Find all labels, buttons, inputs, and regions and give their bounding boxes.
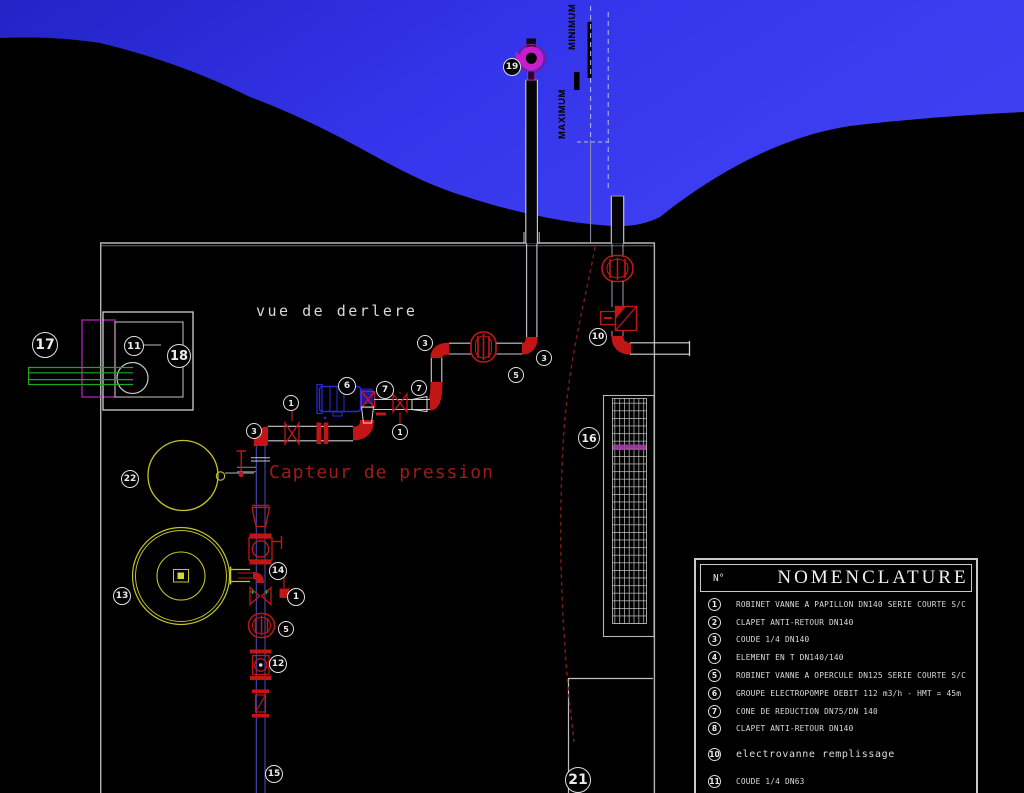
callout-19: 19 — [503, 58, 521, 76]
callout-18: 18 — [167, 344, 191, 368]
row-number-badge: 3 — [708, 633, 721, 646]
nomenclature-row-4: 4ELEMENT EN T DN140/140 — [708, 652, 976, 663]
callout-1: 1 — [392, 424, 408, 440]
nomenclature-row-3: 3COUDE 1/4 DN140 — [708, 634, 976, 645]
callout-11: 11 — [124, 336, 144, 356]
level-curve — [561, 247, 595, 742]
callout-5: 5 — [278, 621, 294, 637]
callout-3: 3 — [246, 423, 262, 439]
row-number-badge: 2 — [708, 616, 721, 629]
suction-riser-pipe — [237, 445, 271, 793]
callout-12: 12 — [269, 655, 287, 673]
callout-7: 7 — [376, 381, 394, 399]
callout-7: 7 — [411, 380, 427, 396]
cad-canvas: vue de derlere Capteur de pression MINIM… — [0, 0, 1024, 793]
butterfly-fitting-icon — [252, 506, 270, 527]
level-min-label: MINIMUM — [567, 4, 579, 50]
row-label: electrovanne remplissage — [736, 749, 895, 760]
callout-17: 17 — [32, 332, 58, 358]
row-label: CONE DE REDUCTION DN75/DN 140 — [736, 707, 878, 716]
nomenclature-row-6: 6GROUPE ELECTROPOMPE DEBIT 112 m3/h - HM… — [708, 688, 976, 699]
row-number-badge: 4 — [708, 651, 721, 664]
row-label: COUDE 1/4 DN63 — [736, 777, 805, 786]
nomenclature-row-8: 8CLAPET ANTI-RETOUR DN140 — [708, 723, 976, 734]
callout-22: 22 — [121, 470, 139, 488]
nomenclature-table: N° NOMENCLATURE 1ROBINET VANNE A PAPILLO… — [694, 558, 978, 793]
callout-14: 14 — [269, 562, 287, 580]
nomenclature-col-no: N° — [701, 573, 775, 584]
nomenclature-row-7: 7CONE DE REDUCTION DN75/DN 140 — [708, 706, 976, 717]
callout-21: 21 — [565, 767, 591, 793]
callout-6: 6 — [338, 377, 356, 395]
pressure-sensor-label: Capteur de pression — [269, 462, 494, 483]
row-number-badge: 8 — [708, 722, 721, 735]
row-number-badge: 1 — [708, 598, 721, 611]
nomenclature-header: N° NOMENCLATURE — [700, 564, 972, 592]
view-title: vue de derlere — [256, 302, 417, 320]
flex-coupling-icon — [249, 614, 275, 638]
row-label: COUDE 1/4 DN140 — [736, 635, 809, 644]
nomenclature-title: NOMENCLATURE — [775, 567, 971, 589]
row-number-badge: 5 — [708, 669, 721, 682]
callout-3: 3 — [536, 350, 552, 366]
callout-1: 1 — [283, 395, 299, 411]
suction-horizontal-pipe — [261, 409, 367, 446]
nomenclature-row-2: 2CLAPET ANTI-RETOUR DN140 — [708, 617, 976, 628]
callout-13: 13 — [113, 587, 131, 605]
callout-3: 3 — [417, 335, 433, 351]
row-number-badge: 11 — [708, 775, 721, 788]
row-label: CLAPET ANTI-RETOUR DN140 — [736, 618, 853, 627]
nomenclature-row-11: 11COUDE 1/4 DN63 — [708, 776, 976, 787]
discharge-pipe — [374, 244, 537, 425]
callout-10: 10 — [589, 328, 607, 346]
water-background — [0, 0, 1024, 226]
row-label: GROUPE ELECTROPOMPE DEBIT 112 m3/h - HMT… — [736, 689, 961, 698]
level-max-label: MAXIMUM — [557, 93, 569, 139]
nomenclature-rows: 1ROBINET VANNE A PAPILLON DN140 SERIE CO… — [696, 599, 976, 788]
callout-1: 1 — [287, 588, 305, 606]
nomenclature-row-10: 10electrovanne remplissage — [708, 749, 976, 760]
callout-5: 5 — [508, 367, 524, 383]
row-label: ROBINET VANNE A PAPILLON DN140 SERIE COU… — [736, 600, 966, 609]
callout-15: 15 — [265, 765, 283, 783]
row-label: CLAPET ANTI-RETOUR DN140 — [736, 724, 853, 733]
check-valve-icon — [252, 690, 269, 718]
strainer-grille — [604, 396, 655, 637]
nomenclature-row-1: 1ROBINET VANNE A PAPILLON DN140 SERIE CO… — [708, 599, 976, 610]
tank-13 — [133, 528, 230, 625]
row-number-badge: 7 — [708, 705, 721, 718]
row-label: ELEMENT EN T DN140/140 — [736, 653, 844, 662]
nomenclature-row-5: 5ROBINET VANNE A OPERCULE DN125 SERIE CO… — [708, 670, 976, 681]
callout-16: 16 — [578, 427, 600, 449]
row-number-badge: 10 — [708, 748, 721, 761]
discharge-pipe-above-water — [524, 80, 539, 244]
row-number-badge: 6 — [708, 687, 721, 700]
row-label: ROBINET VANNE A OPERCULE DN125 SERIE COU… — [736, 671, 966, 680]
